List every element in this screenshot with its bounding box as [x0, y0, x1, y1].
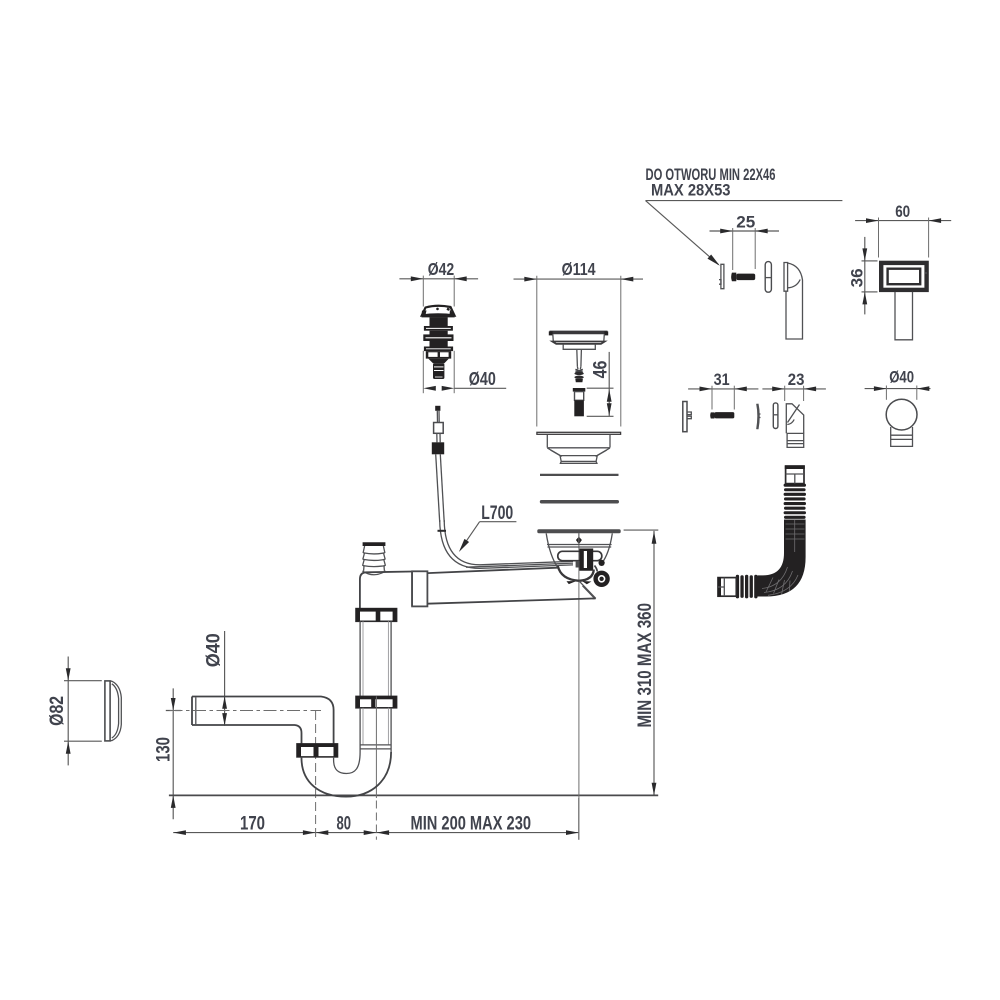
- svg-text:MAX 28X53: MAX 28X53: [651, 182, 731, 200]
- svg-text:Ø40: Ø40: [469, 369, 496, 389]
- svg-text:Ø82: Ø82: [47, 696, 68, 726]
- svg-text:46: 46: [590, 361, 611, 379]
- svg-text:MIN 310 MAX 360: MIN 310 MAX 360: [635, 603, 656, 728]
- svg-text:25: 25: [736, 213, 755, 231]
- svg-text:Ø42: Ø42: [428, 259, 455, 279]
- svg-text:23: 23: [788, 371, 805, 389]
- svg-text:Ø40: Ø40: [203, 633, 224, 667]
- svg-text:80: 80: [337, 814, 352, 835]
- svg-text:31: 31: [714, 371, 730, 389]
- svg-text:Ø114: Ø114: [562, 259, 596, 279]
- svg-text:MIN 200 MAX 230: MIN 200 MAX 230: [411, 814, 532, 835]
- svg-text:Ø40: Ø40: [889, 368, 914, 386]
- svg-text:170: 170: [240, 814, 265, 835]
- svg-text:L700: L700: [481, 503, 513, 524]
- svg-text:36: 36: [849, 268, 867, 287]
- svg-text:130: 130: [154, 737, 175, 762]
- svg-text:60: 60: [895, 203, 910, 221]
